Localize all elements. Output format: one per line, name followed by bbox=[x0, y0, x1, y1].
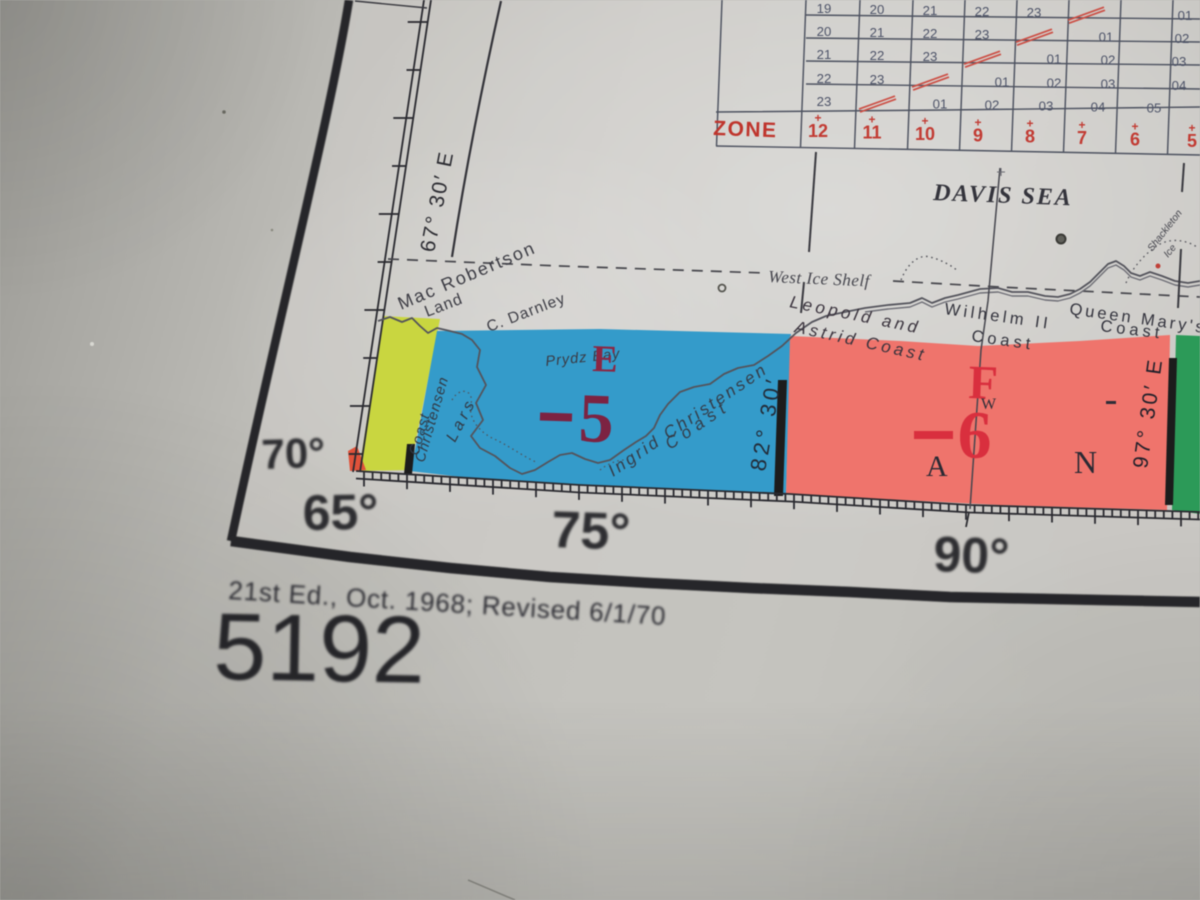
svg-text:23: 23 bbox=[870, 72, 885, 87]
svg-text:A: A bbox=[926, 450, 948, 483]
svg-text:19: 19 bbox=[817, 1, 832, 16]
svg-text:23: 23 bbox=[975, 27, 990, 42]
svg-text:01: 01 bbox=[1047, 52, 1062, 67]
svg-text:+: + bbox=[1026, 117, 1033, 131]
svg-text:+: + bbox=[814, 111, 821, 125]
svg-text:+: + bbox=[1188, 121, 1195, 135]
svg-text:23: 23 bbox=[817, 94, 832, 109]
svg-text:23: 23 bbox=[1027, 5, 1042, 20]
svg-text:20: 20 bbox=[870, 2, 885, 17]
svg-text:+: + bbox=[1131, 120, 1138, 134]
svg-text:22: 22 bbox=[975, 4, 990, 19]
svg-text:23: 23 bbox=[923, 49, 938, 64]
svg-text:01: 01 bbox=[1178, 8, 1193, 23]
svg-text:04: 04 bbox=[1091, 100, 1106, 115]
svg-text:+: + bbox=[921, 114, 928, 128]
svg-text:W: W bbox=[981, 396, 997, 413]
svg-text:20: 20 bbox=[817, 24, 832, 39]
svg-text:E: E bbox=[592, 338, 619, 381]
svg-text:21: 21 bbox=[870, 25, 885, 40]
svg-text:22: 22 bbox=[817, 71, 832, 86]
svg-text:21: 21 bbox=[923, 3, 938, 18]
svg-text:DAVIS SEA: DAVIS SEA bbox=[932, 180, 1074, 211]
svg-text:ZONE: ZONE bbox=[713, 117, 778, 142]
svg-text:02: 02 bbox=[1047, 76, 1062, 91]
svg-text:+: + bbox=[1078, 118, 1085, 132]
svg-text:03: 03 bbox=[1172, 54, 1187, 69]
svg-text:21: 21 bbox=[817, 47, 832, 62]
svg-text:75°: 75° bbox=[551, 501, 632, 562]
svg-text:05: 05 bbox=[1147, 101, 1162, 116]
svg-text:22: 22 bbox=[870, 48, 885, 63]
svg-text:03: 03 bbox=[1101, 77, 1116, 92]
svg-text:02: 02 bbox=[1175, 31, 1190, 46]
svg-text:+: + bbox=[974, 115, 981, 129]
svg-text:01: 01 bbox=[933, 96, 948, 111]
svg-text:+: + bbox=[868, 113, 875, 127]
svg-text:04: 04 bbox=[1172, 78, 1187, 93]
svg-text:02: 02 bbox=[985, 97, 1000, 112]
svg-text:02: 02 bbox=[1101, 53, 1116, 68]
svg-text:03: 03 bbox=[1039, 98, 1054, 113]
svg-text:01: 01 bbox=[1099, 30, 1114, 45]
svg-text:5: 5 bbox=[577, 380, 615, 458]
svg-text:01: 01 bbox=[995, 75, 1010, 90]
svg-text:22: 22 bbox=[923, 26, 938, 41]
svg-text:N: N bbox=[1074, 444, 1097, 480]
